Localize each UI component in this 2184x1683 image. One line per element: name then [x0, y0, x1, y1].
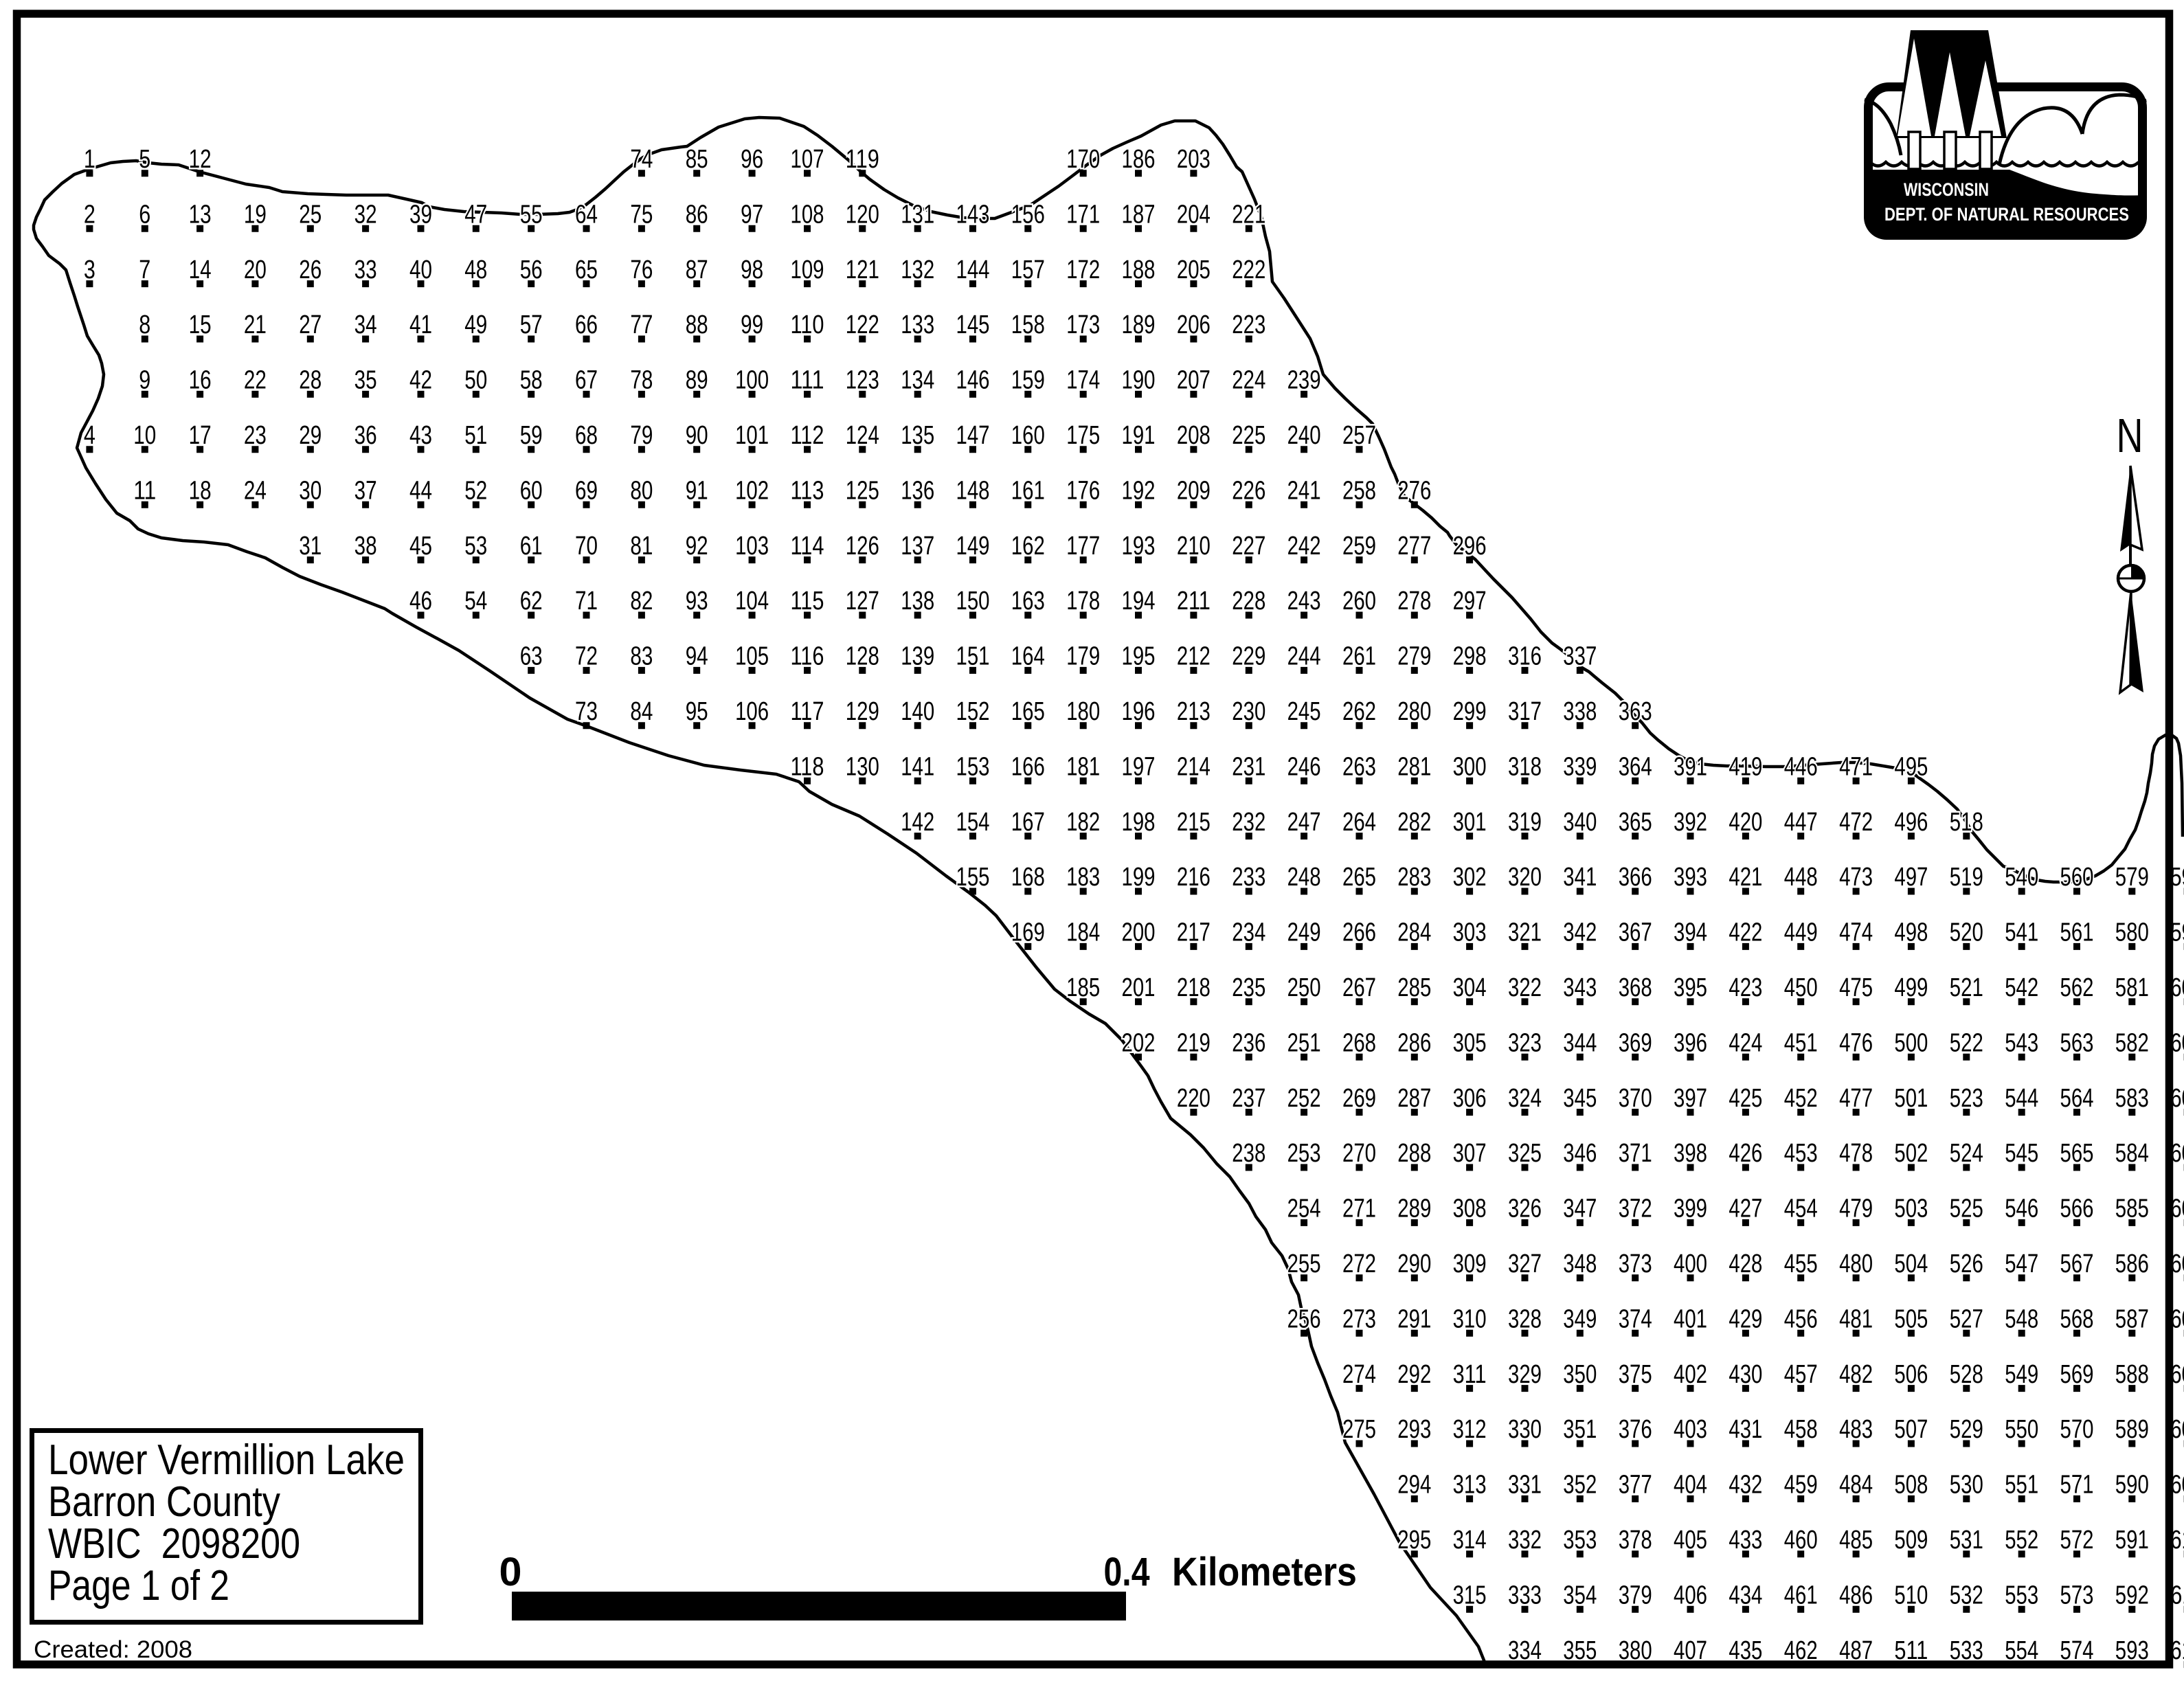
svg-text:243: 243	[1287, 587, 1321, 615]
svg-text:N: N	[2117, 409, 2143, 462]
svg-text:50: 50	[464, 366, 487, 395]
svg-text:346: 346	[1563, 1139, 1597, 1168]
svg-text:582: 582	[2115, 1028, 2149, 1057]
svg-text:290: 290	[1397, 1250, 1431, 1278]
svg-text:312: 312	[1453, 1415, 1487, 1444]
svg-text:40: 40	[409, 256, 432, 284]
svg-text:506: 506	[1894, 1360, 1928, 1389]
svg-text:338: 338	[1563, 697, 1597, 726]
svg-text:103: 103	[735, 532, 769, 561]
svg-text:499: 499	[1894, 973, 1928, 1002]
svg-text:97: 97	[741, 200, 763, 229]
svg-text:156: 156	[1011, 200, 1045, 229]
svg-text:147: 147	[956, 421, 990, 450]
svg-text:188: 188	[1122, 256, 1156, 284]
svg-text:571: 571	[2060, 1471, 2094, 1500]
svg-text:406: 406	[1674, 1581, 1707, 1609]
svg-text:422: 422	[1729, 918, 1762, 947]
svg-text:34: 34	[354, 310, 377, 339]
svg-text:209: 209	[1177, 476, 1211, 505]
svg-text:32: 32	[354, 200, 377, 229]
svg-text:507: 507	[1894, 1415, 1928, 1444]
svg-text:108: 108	[791, 200, 824, 229]
svg-text:258: 258	[1342, 476, 1376, 505]
svg-text:313: 313	[1453, 1471, 1487, 1500]
svg-text:254: 254	[1287, 1195, 1321, 1223]
svg-text:115: 115	[791, 587, 824, 615]
svg-text:282: 282	[1397, 808, 1431, 837]
svg-text:589: 589	[2115, 1415, 2149, 1444]
svg-text:232: 232	[1232, 808, 1265, 837]
svg-text:66: 66	[575, 310, 598, 339]
svg-text:247: 247	[1287, 808, 1321, 837]
svg-text:532: 532	[1950, 1581, 1983, 1609]
svg-text:175: 175	[1066, 421, 1100, 450]
svg-text:44: 44	[409, 476, 432, 505]
svg-text:508: 508	[1894, 1471, 1928, 1500]
svg-text:340: 340	[1563, 808, 1597, 837]
svg-text:Lower Vermillion Lake: Lower Vermillion Lake	[48, 1436, 405, 1484]
svg-text:69: 69	[575, 476, 598, 505]
svg-text:75: 75	[630, 200, 653, 229]
svg-text:10: 10	[133, 421, 156, 450]
svg-text:82: 82	[630, 587, 653, 615]
svg-text:523: 523	[1950, 1084, 1983, 1113]
svg-text:246: 246	[1287, 752, 1321, 781]
svg-text:590: 590	[2115, 1471, 2149, 1500]
svg-text:126: 126	[846, 532, 879, 561]
svg-text:399: 399	[1674, 1195, 1707, 1223]
svg-text:306: 306	[1453, 1084, 1487, 1113]
svg-text:401: 401	[1674, 1304, 1707, 1333]
svg-text:145: 145	[956, 310, 990, 339]
svg-text:58: 58	[520, 366, 543, 395]
svg-text:287: 287	[1397, 1084, 1431, 1113]
svg-text:74: 74	[630, 145, 653, 174]
svg-text:239: 239	[1287, 366, 1321, 395]
svg-text:505: 505	[1894, 1304, 1928, 1333]
svg-text:426: 426	[1729, 1139, 1762, 1168]
svg-text:171: 171	[1066, 200, 1100, 229]
svg-text:586: 586	[2115, 1250, 2149, 1278]
svg-text:447: 447	[1784, 808, 1818, 837]
svg-text:569: 569	[2060, 1360, 2094, 1389]
svg-text:309: 309	[1453, 1250, 1487, 1278]
svg-text:527: 527	[1950, 1304, 1983, 1333]
svg-text:47: 47	[464, 200, 487, 229]
svg-text:579: 579	[2115, 863, 2149, 892]
svg-text:396: 396	[1674, 1028, 1707, 1057]
svg-text:244: 244	[1287, 642, 1321, 671]
svg-text:311: 311	[1453, 1360, 1487, 1389]
svg-text:273: 273	[1342, 1304, 1376, 1333]
svg-text:472: 472	[1839, 808, 1873, 837]
svg-text:455: 455	[1784, 1250, 1818, 1278]
svg-text:221: 221	[1232, 200, 1265, 229]
svg-text:116: 116	[791, 642, 824, 671]
svg-text:257: 257	[1342, 421, 1376, 450]
svg-text:572: 572	[2060, 1526, 2094, 1555]
svg-text:197: 197	[1122, 752, 1156, 781]
svg-text:206: 206	[1177, 310, 1211, 339]
svg-text:339: 339	[1563, 752, 1597, 781]
svg-text:191: 191	[1122, 421, 1156, 450]
svg-text:267: 267	[1342, 973, 1376, 1002]
svg-text:252: 252	[1287, 1084, 1321, 1113]
svg-text:149: 149	[956, 532, 990, 561]
svg-text:217: 217	[1177, 918, 1211, 947]
svg-text:366: 366	[1619, 863, 1652, 892]
svg-text:93: 93	[686, 587, 708, 615]
svg-text:169: 169	[1011, 918, 1045, 947]
svg-text:307: 307	[1453, 1139, 1487, 1168]
svg-text:94: 94	[686, 642, 708, 671]
svg-text:80: 80	[630, 476, 653, 505]
svg-text:430: 430	[1729, 1360, 1762, 1389]
svg-text:280: 280	[1397, 697, 1431, 726]
svg-text:53: 53	[464, 532, 487, 561]
svg-text:226: 226	[1232, 476, 1265, 505]
svg-text:248: 248	[1287, 863, 1321, 892]
svg-text:19: 19	[244, 200, 267, 229]
svg-text:219: 219	[1177, 1028, 1211, 1057]
svg-text:90: 90	[686, 421, 708, 450]
svg-text:446: 446	[1784, 752, 1818, 781]
svg-text:227: 227	[1232, 532, 1265, 561]
svg-text:5: 5	[139, 145, 150, 174]
svg-text:370: 370	[1619, 1084, 1652, 1113]
svg-text:208: 208	[1177, 421, 1211, 450]
svg-text:225: 225	[1232, 421, 1265, 450]
svg-text:481: 481	[1839, 1304, 1873, 1333]
svg-text:478: 478	[1839, 1139, 1873, 1168]
svg-text:77: 77	[630, 310, 653, 339]
svg-text:531: 531	[1950, 1526, 1983, 1555]
svg-text:502: 502	[1894, 1139, 1928, 1168]
svg-text:295: 295	[1397, 1526, 1431, 1555]
svg-text:485: 485	[1839, 1526, 1873, 1555]
svg-text:62: 62	[520, 587, 543, 615]
svg-text:286: 286	[1397, 1028, 1431, 1057]
svg-text:161: 161	[1011, 476, 1045, 505]
svg-text:449: 449	[1784, 918, 1818, 947]
svg-text:518: 518	[1950, 808, 1983, 837]
svg-text:395: 395	[1674, 973, 1707, 1002]
svg-text:504: 504	[1894, 1250, 1928, 1278]
svg-text:Page 1 of 2: Page 1 of 2	[48, 1562, 229, 1609]
svg-text:471: 471	[1839, 752, 1873, 781]
svg-text:185: 185	[1066, 973, 1100, 1002]
svg-text:584: 584	[2115, 1139, 2149, 1168]
svg-text:70: 70	[575, 532, 598, 561]
svg-text:132: 132	[901, 256, 934, 284]
svg-text:285: 285	[1397, 973, 1431, 1002]
svg-text:114: 114	[791, 532, 824, 561]
svg-text:64: 64	[575, 200, 598, 229]
svg-text:43: 43	[409, 421, 432, 450]
svg-text:297: 297	[1453, 587, 1487, 615]
svg-text:329: 329	[1508, 1360, 1542, 1389]
svg-text:293: 293	[1397, 1415, 1431, 1444]
svg-text:323: 323	[1508, 1028, 1542, 1057]
svg-text:218: 218	[1177, 973, 1211, 1002]
svg-text:588: 588	[2115, 1360, 2149, 1389]
svg-text:160: 160	[1011, 421, 1045, 450]
svg-text:421: 421	[1729, 863, 1762, 892]
svg-text:110: 110	[791, 310, 824, 339]
svg-text:423: 423	[1729, 973, 1762, 1002]
svg-text:279: 279	[1397, 642, 1431, 671]
svg-text:392: 392	[1674, 808, 1707, 837]
svg-text:178: 178	[1066, 587, 1100, 615]
svg-text:348: 348	[1563, 1250, 1597, 1278]
svg-text:79: 79	[630, 421, 653, 450]
svg-text:299: 299	[1453, 697, 1487, 726]
svg-text:281: 281	[1397, 752, 1431, 781]
svg-text:60: 60	[520, 476, 543, 505]
svg-text:136: 136	[901, 476, 934, 505]
svg-text:28: 28	[299, 366, 322, 395]
svg-text:529: 529	[1950, 1415, 1983, 1444]
svg-text:562: 562	[2060, 973, 2094, 1002]
svg-text:113: 113	[791, 476, 824, 505]
svg-text:342: 342	[1563, 918, 1597, 947]
svg-text:379: 379	[1619, 1581, 1652, 1609]
svg-text:72: 72	[575, 642, 598, 671]
svg-text:168: 168	[1011, 863, 1045, 892]
svg-text:35: 35	[354, 366, 377, 395]
svg-text:139: 139	[901, 642, 934, 671]
svg-text:364: 364	[1619, 752, 1652, 781]
svg-text:78: 78	[630, 366, 653, 395]
svg-text:377: 377	[1619, 1471, 1652, 1500]
svg-text:283: 283	[1397, 863, 1431, 892]
svg-text:260: 260	[1342, 587, 1376, 615]
svg-text:8: 8	[139, 310, 150, 339]
svg-text:344: 344	[1563, 1028, 1597, 1057]
svg-text:128: 128	[846, 642, 879, 671]
svg-text:317: 317	[1508, 697, 1542, 726]
svg-text:183: 183	[1066, 863, 1100, 892]
svg-text:350: 350	[1563, 1360, 1597, 1389]
svg-text:264: 264	[1342, 808, 1376, 837]
svg-text:581: 581	[2115, 973, 2149, 1002]
svg-text:480: 480	[1839, 1250, 1873, 1278]
svg-text:140: 140	[901, 697, 934, 726]
svg-text:237: 237	[1232, 1084, 1265, 1113]
svg-text:91: 91	[686, 476, 708, 505]
svg-text:WBIC 2098200: WBIC 2098200	[48, 1520, 300, 1568]
svg-text:548: 548	[2005, 1304, 2038, 1333]
svg-text:510: 510	[1894, 1581, 1928, 1609]
svg-text:419: 419	[1729, 752, 1762, 781]
svg-text:39: 39	[409, 200, 432, 229]
svg-text:16: 16	[189, 366, 212, 395]
svg-text:105: 105	[735, 642, 769, 671]
svg-text:234: 234	[1232, 918, 1265, 947]
svg-text:457: 457	[1784, 1360, 1818, 1389]
svg-text:173: 173	[1066, 310, 1100, 339]
svg-text:261: 261	[1342, 642, 1376, 671]
svg-text:24: 24	[244, 476, 267, 505]
svg-text:292: 292	[1397, 1360, 1431, 1389]
svg-text:524: 524	[1950, 1139, 1983, 1168]
svg-text:199: 199	[1122, 863, 1156, 892]
svg-text:456: 456	[1784, 1304, 1818, 1333]
svg-text:332: 332	[1508, 1526, 1542, 1555]
svg-text:484: 484	[1839, 1471, 1873, 1500]
svg-text:322: 322	[1508, 973, 1542, 1002]
svg-text:84: 84	[630, 697, 653, 726]
svg-text:525: 525	[1950, 1195, 1983, 1223]
svg-text:223: 223	[1232, 310, 1265, 339]
svg-text:180: 180	[1066, 697, 1100, 726]
svg-text:321: 321	[1508, 918, 1542, 947]
svg-text:320: 320	[1508, 863, 1542, 892]
svg-text:563: 563	[2060, 1028, 2094, 1057]
svg-text:150: 150	[956, 587, 990, 615]
svg-text:253: 253	[1287, 1139, 1321, 1168]
svg-text:303: 303	[1453, 918, 1487, 947]
svg-text:193: 193	[1122, 532, 1156, 561]
svg-text:189: 189	[1122, 310, 1156, 339]
svg-text:450: 450	[1784, 973, 1818, 1002]
svg-text:394: 394	[1674, 918, 1707, 947]
svg-text:353: 353	[1563, 1526, 1597, 1555]
svg-text:170: 170	[1066, 145, 1100, 174]
svg-text:288: 288	[1397, 1139, 1431, 1168]
svg-text:363: 363	[1619, 697, 1652, 726]
svg-text:341: 341	[1563, 863, 1597, 892]
svg-text:144: 144	[956, 256, 990, 284]
svg-text:296: 296	[1453, 532, 1487, 561]
svg-text:12: 12	[189, 145, 212, 174]
svg-text:41: 41	[409, 310, 432, 339]
svg-text:568: 568	[2060, 1304, 2094, 1333]
svg-text:540: 540	[2005, 863, 2038, 892]
svg-text:302: 302	[1453, 863, 1487, 892]
svg-text:498: 498	[1894, 918, 1928, 947]
svg-text:549: 549	[2005, 1360, 2038, 1389]
svg-text:369: 369	[1619, 1028, 1652, 1057]
svg-text:294: 294	[1397, 1471, 1431, 1500]
svg-text:3: 3	[84, 256, 95, 284]
svg-text:432: 432	[1729, 1471, 1762, 1500]
svg-text:152: 152	[956, 697, 990, 726]
svg-text:137: 137	[901, 532, 934, 561]
svg-text:86: 86	[686, 200, 708, 229]
svg-text:154: 154	[956, 808, 990, 837]
svg-text:216: 216	[1177, 863, 1211, 892]
svg-text:591: 591	[2115, 1526, 2149, 1555]
svg-text:104: 104	[735, 587, 769, 615]
svg-text:177: 177	[1066, 532, 1100, 561]
svg-text:331: 331	[1508, 1471, 1542, 1500]
svg-text:345: 345	[1563, 1084, 1597, 1113]
svg-text:21: 21	[244, 310, 267, 339]
svg-text:497: 497	[1894, 863, 1928, 892]
svg-text:460: 460	[1784, 1526, 1818, 1555]
svg-text:592: 592	[2115, 1581, 2149, 1609]
svg-text:125: 125	[846, 476, 879, 505]
svg-text:427: 427	[1729, 1195, 1762, 1223]
svg-text:397: 397	[1674, 1084, 1707, 1113]
svg-text:298: 298	[1453, 642, 1487, 671]
svg-text:351: 351	[1563, 1415, 1597, 1444]
svg-text:546: 546	[2005, 1195, 2038, 1223]
svg-text:373: 373	[1619, 1250, 1652, 1278]
svg-text:367: 367	[1619, 918, 1652, 947]
svg-text:318: 318	[1508, 752, 1542, 781]
svg-text:45: 45	[409, 532, 432, 561]
svg-text:194: 194	[1122, 587, 1156, 615]
svg-text:587: 587	[2115, 1304, 2149, 1333]
svg-text:420: 420	[1729, 808, 1762, 837]
svg-text:343: 343	[1563, 973, 1597, 1002]
svg-text:25: 25	[299, 200, 322, 229]
svg-text:81: 81	[630, 532, 653, 561]
svg-text:564: 564	[2060, 1084, 2094, 1113]
svg-text:49: 49	[464, 310, 487, 339]
svg-text:330: 330	[1508, 1415, 1542, 1444]
svg-text:231: 231	[1232, 752, 1265, 781]
svg-text:48: 48	[464, 256, 487, 284]
svg-text:528: 528	[1950, 1360, 1983, 1389]
svg-text:265: 265	[1342, 863, 1376, 892]
svg-text:158: 158	[1011, 310, 1045, 339]
svg-text:59: 59	[520, 421, 543, 450]
svg-text:503: 503	[1894, 1195, 1928, 1223]
svg-text:473: 473	[1839, 863, 1873, 892]
svg-text:262: 262	[1342, 697, 1376, 726]
svg-text:550: 550	[2005, 1415, 2038, 1444]
svg-text:133: 133	[901, 310, 934, 339]
svg-text:240: 240	[1287, 421, 1321, 450]
svg-text:284: 284	[1397, 918, 1431, 947]
svg-text:117: 117	[791, 697, 824, 726]
svg-text:585: 585	[2115, 1195, 2149, 1223]
svg-text:17: 17	[189, 421, 212, 450]
svg-text:122: 122	[846, 310, 879, 339]
svg-text:224: 224	[1232, 366, 1265, 395]
svg-text:238: 238	[1232, 1139, 1265, 1168]
svg-text:308: 308	[1453, 1195, 1487, 1223]
svg-text:7: 7	[139, 256, 150, 284]
svg-text:310: 310	[1453, 1304, 1487, 1333]
svg-text:153: 153	[956, 752, 990, 781]
svg-text:482: 482	[1839, 1360, 1873, 1389]
svg-text:483: 483	[1839, 1415, 1873, 1444]
svg-text:544: 544	[2005, 1084, 2038, 1113]
svg-text:304: 304	[1453, 973, 1487, 1002]
svg-text:352: 352	[1563, 1471, 1597, 1500]
svg-text:159: 159	[1011, 366, 1045, 395]
svg-text:55: 55	[520, 200, 543, 229]
svg-text:266: 266	[1342, 918, 1376, 947]
svg-text:96: 96	[741, 145, 763, 174]
svg-text:87: 87	[686, 256, 708, 284]
svg-text:155: 155	[956, 863, 990, 892]
svg-text:459: 459	[1784, 1471, 1818, 1500]
svg-text:89: 89	[686, 366, 708, 395]
svg-text:327: 327	[1508, 1250, 1542, 1278]
svg-text:142: 142	[901, 808, 934, 837]
svg-text:543: 543	[2005, 1028, 2038, 1057]
svg-text:374: 374	[1619, 1304, 1652, 1333]
svg-text:163: 163	[1011, 587, 1045, 615]
svg-text:278: 278	[1397, 587, 1431, 615]
svg-text:23: 23	[244, 421, 267, 450]
